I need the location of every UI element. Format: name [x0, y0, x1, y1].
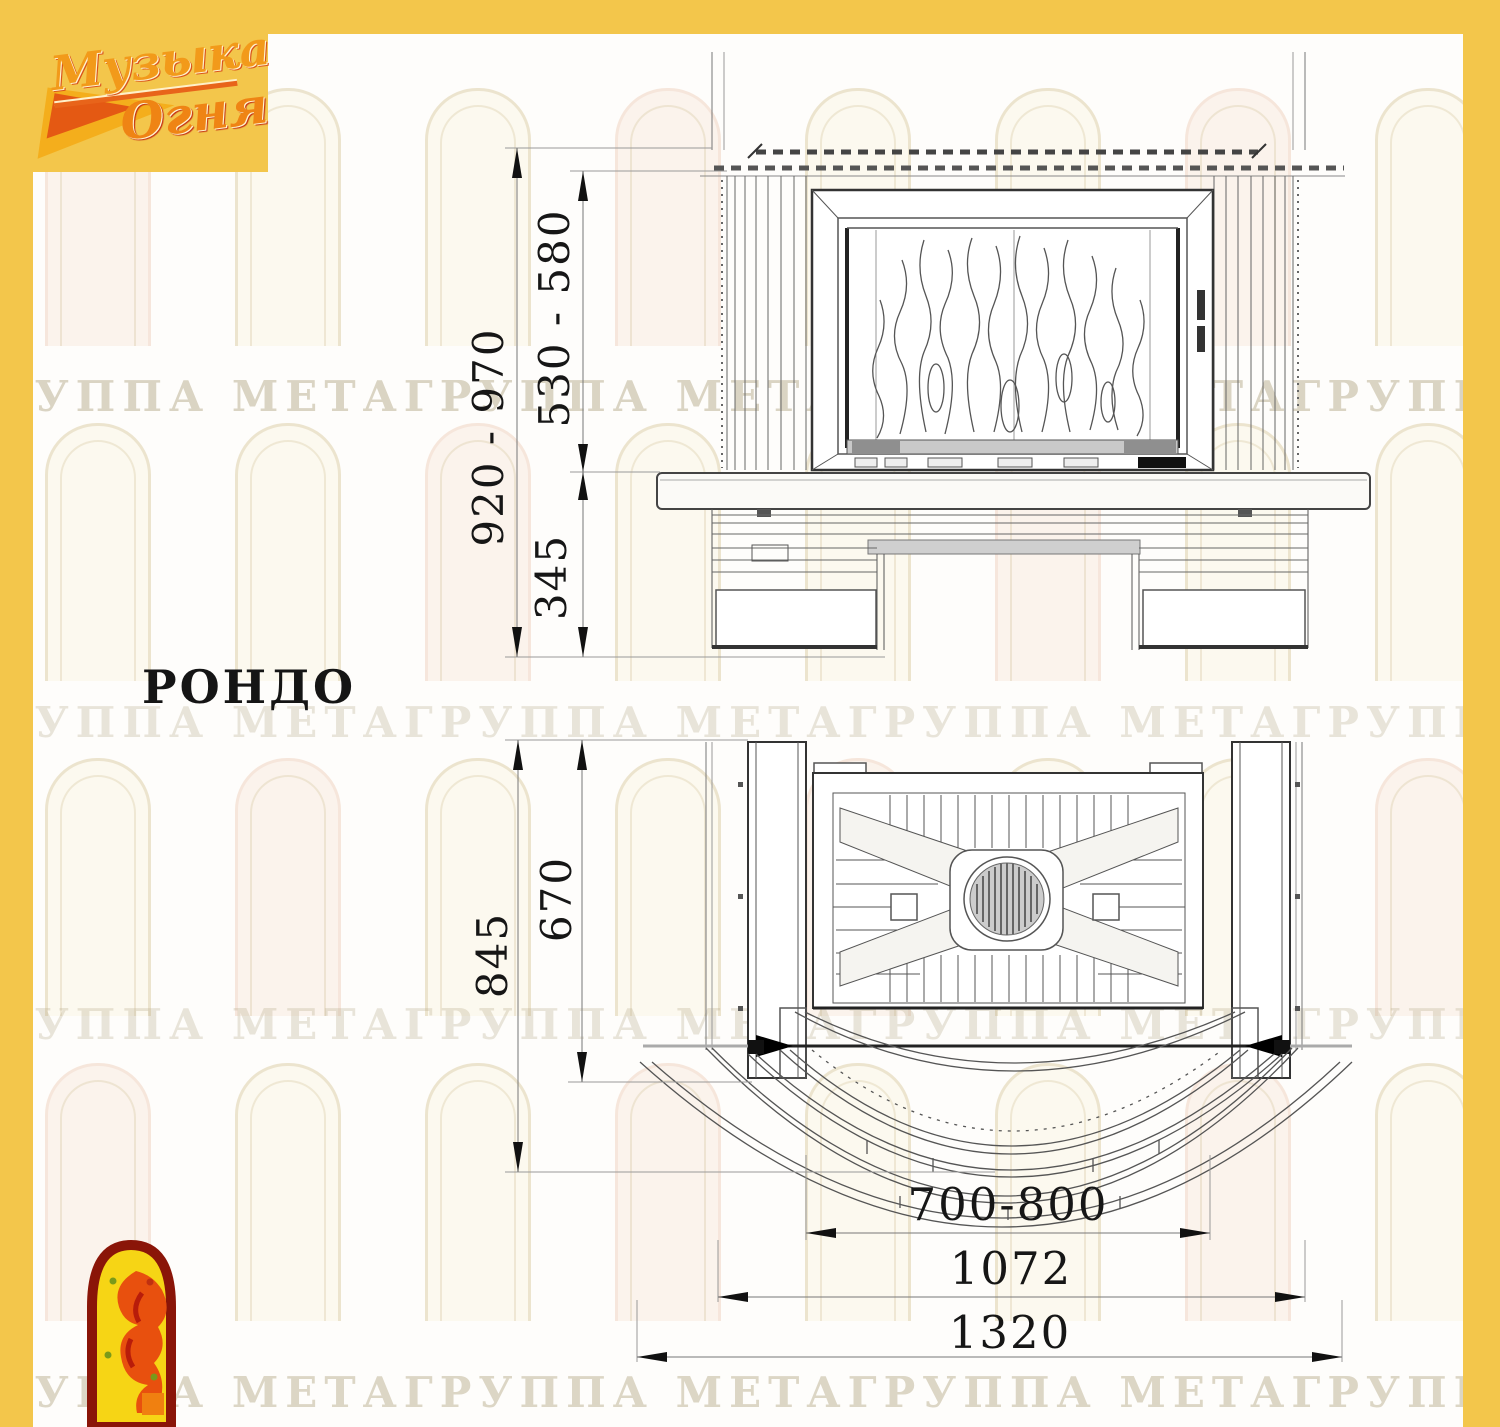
dim-overall-width-label: 1320: [949, 1306, 1072, 1359]
front-view: 920 - 970 530 - 580 345: [464, 52, 1370, 657]
dim-base-height-label: 345: [527, 534, 576, 620]
dim-firebox-width-label: 700-800: [908, 1178, 1109, 1231]
jester-emblem-icon: [84, 1235, 179, 1427]
page: { "colors": { "frame_yellow": "#f3c64b",…: [0, 0, 1500, 1427]
dim-inner-depth-label: 670: [532, 856, 581, 942]
dim-hearth-width-label: 1072: [950, 1242, 1073, 1295]
dim-overall-height-label: 920 - 970: [464, 327, 513, 546]
plan-view: 845 670 700-800 1072 1320: [468, 740, 1352, 1362]
frame-bar-right: [1463, 0, 1500, 1427]
dim-firebox-height-label: 530 - 580: [530, 208, 579, 427]
brand-logo: Музыка Огня: [36, 26, 266, 176]
dim-overall-depth-label: 845: [468, 912, 517, 998]
model-title: РОНДО: [142, 660, 356, 714]
frame-bar-left: [0, 0, 33, 1427]
